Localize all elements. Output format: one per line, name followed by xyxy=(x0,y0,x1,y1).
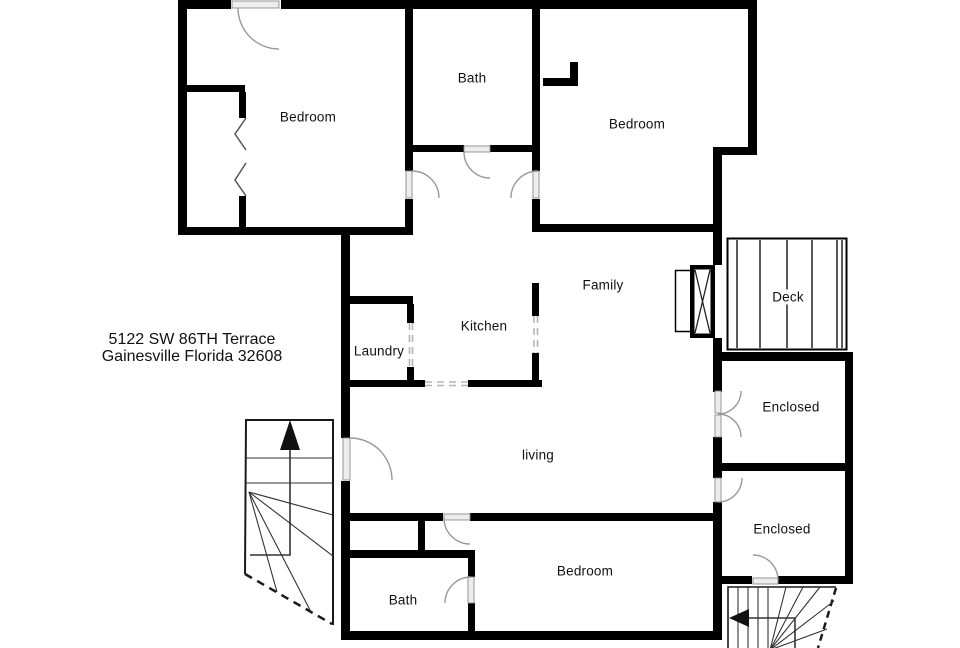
address-line-1: 5122 SW 86TH Terrace xyxy=(81,331,303,348)
room-label-bedroom-bottom: Bedroom xyxy=(557,564,613,579)
door-arc-enclosed-lower xyxy=(718,478,742,502)
door-arc-hall-bedroom-left xyxy=(412,171,439,198)
room-label-deck: Deck xyxy=(770,290,806,305)
room-label-kitchen: Kitchen xyxy=(461,319,507,334)
room-label-enclosed-lower: Enclosed xyxy=(753,522,810,537)
room-label-enclosed-upper: Enclosed xyxy=(762,400,819,415)
stairs-right xyxy=(728,587,836,648)
door-arc-bedroom-tl-entry xyxy=(238,8,279,49)
stairs-left xyxy=(245,420,333,625)
address-line-2: Gainesville Florida 32608 xyxy=(81,348,303,365)
room-label-bath-bottom: Bath xyxy=(389,593,418,608)
fireplace-icon xyxy=(676,265,716,338)
door-arc-bath-bottom xyxy=(445,577,471,603)
property-address: 5122 SW 86TH Terrace Gainesville Florida… xyxy=(81,331,303,365)
stairs-up-arrow-icon xyxy=(250,420,300,555)
room-label-living: living xyxy=(522,448,554,463)
door-arc-enclosed-upper-b xyxy=(718,414,741,437)
bifold-closet-door-icon xyxy=(235,118,246,196)
room-label-bedroom-top-left: Bedroom xyxy=(280,110,336,125)
door-arc-bedroom-bottom xyxy=(444,518,470,544)
door-arc-stairs-right xyxy=(753,555,778,580)
stairs-left-arrow-icon xyxy=(729,609,795,648)
room-label-laundry: Laundry xyxy=(354,344,404,359)
door-arc-bath-top xyxy=(464,152,490,178)
floor-plan: Bedroom Bath Bedroom Family Kitchen Laun… xyxy=(0,0,960,648)
room-label-bedroom-top-right: Bedroom xyxy=(609,117,665,132)
door-arc-enclosed-upper-a xyxy=(718,391,741,414)
room-label-family: Family xyxy=(583,278,624,293)
door-arc-front-entry xyxy=(350,438,392,480)
room-label-bath-top: Bath xyxy=(458,71,487,86)
